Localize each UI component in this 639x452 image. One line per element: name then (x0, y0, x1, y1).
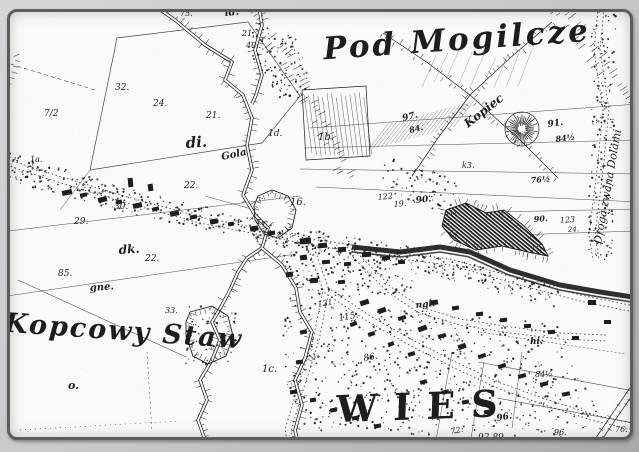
building (562, 391, 571, 397)
map-label: 76½ (530, 174, 550, 185)
map-label: 76. (615, 425, 628, 434)
map-label: 22. (183, 181, 198, 191)
map-label: ngl. (415, 299, 435, 311)
map-label: 84½ (535, 370, 553, 379)
map-label: 1a. (30, 155, 42, 164)
map-frame: id.75.21.40.32.7/224.21.di.1d.Gola1b.97.… (7, 9, 633, 440)
map-label: 97. (401, 110, 419, 123)
building (344, 262, 351, 267)
map-label: 92 89 (478, 433, 504, 440)
map-label: 30. (114, 202, 128, 212)
building (290, 390, 297, 395)
building (268, 231, 275, 236)
building (300, 255, 308, 261)
map-label: k3. (462, 161, 474, 170)
map-label: di. (185, 133, 208, 152)
map-label: 75. (180, 9, 193, 18)
building (128, 178, 134, 187)
building (98, 196, 108, 203)
building (286, 272, 294, 278)
paper-speckle (14, 16, 625, 434)
building (500, 318, 507, 323)
building (250, 225, 259, 231)
map-label: o. (68, 379, 79, 392)
map-label: 96. (554, 428, 567, 437)
map-label: Kopiec (460, 91, 506, 131)
building (548, 330, 555, 334)
map-label: 90. (533, 213, 548, 224)
building (588, 300, 596, 305)
building (80, 192, 88, 197)
map-labels: id.75.21.40.32.7/224.21.di.1d.Gola1b.97.… (30, 9, 628, 440)
building (310, 398, 317, 403)
building (572, 336, 579, 340)
building (133, 202, 143, 209)
building (438, 333, 447, 339)
scanned-map-page: id.75.21.40.32.7/224.21.di.1d.Gola1b.97.… (0, 0, 639, 452)
map-label: 1c. (262, 364, 277, 375)
building (408, 351, 416, 357)
building (338, 280, 345, 285)
building (338, 247, 346, 253)
building (368, 331, 376, 337)
map-drawing: id.75.21.40.32.7/224.21.di.1d.Gola1b.97.… (7, 9, 633, 440)
building (228, 222, 235, 227)
map-label: 32. (115, 83, 129, 93)
map-label: 7/2 (44, 109, 59, 119)
building (417, 325, 427, 333)
map-label: 90. (415, 194, 432, 206)
map-label: 24. (152, 99, 167, 109)
map-label: 21. (241, 29, 255, 38)
village-name-label: WIES (335, 381, 514, 431)
map-label: 121. (317, 297, 336, 309)
map-label: 85. (58, 269, 72, 279)
map-label: 1d. (268, 129, 282, 139)
map-canvas: id.75.21.40.32.7/224.21.di.1d.Gola1b.97.… (7, 9, 633, 440)
building (318, 243, 327, 249)
map-label: Gola (220, 147, 247, 163)
building (540, 381, 549, 387)
building (359, 299, 369, 307)
building (476, 312, 483, 317)
map-label: 84. (408, 122, 424, 135)
building (382, 256, 390, 260)
building (190, 214, 198, 219)
building (498, 363, 507, 369)
building (152, 206, 160, 212)
map-label: 24. (567, 225, 580, 234)
building (170, 210, 180, 217)
map-label: 122 (377, 191, 393, 202)
map-label: 1b. (318, 132, 334, 143)
map-label: 16. (290, 197, 306, 208)
map-label: 123 (560, 215, 576, 225)
map-label: dk. (118, 242, 140, 257)
map-label: 22. (144, 254, 159, 264)
map-label: 21. (205, 111, 220, 121)
map-label: 91. (547, 118, 564, 130)
map-label: 29. (73, 217, 88, 227)
map-label: 40. (245, 41, 259, 50)
building (148, 184, 154, 192)
building (210, 218, 219, 225)
map-label: 19. (393, 199, 407, 209)
building (452, 306, 459, 311)
building (387, 341, 394, 347)
building (398, 260, 405, 264)
building (524, 324, 531, 328)
building (300, 329, 308, 334)
mound-symbol (505, 112, 539, 146)
building (377, 307, 386, 314)
building (362, 252, 371, 258)
dark-stream (351, 198, 633, 303)
building (604, 320, 611, 324)
building (62, 189, 73, 196)
map-label: 86. (363, 352, 379, 364)
map-label: hi. (530, 337, 543, 347)
building (310, 278, 318, 284)
building (322, 260, 330, 265)
map-label: id. (224, 9, 239, 19)
map-label: 33. (165, 306, 178, 315)
building (398, 315, 407, 321)
building (300, 238, 311, 245)
map-label: gne. (89, 281, 114, 294)
building (457, 343, 466, 350)
map-label: 84½ (555, 131, 576, 144)
